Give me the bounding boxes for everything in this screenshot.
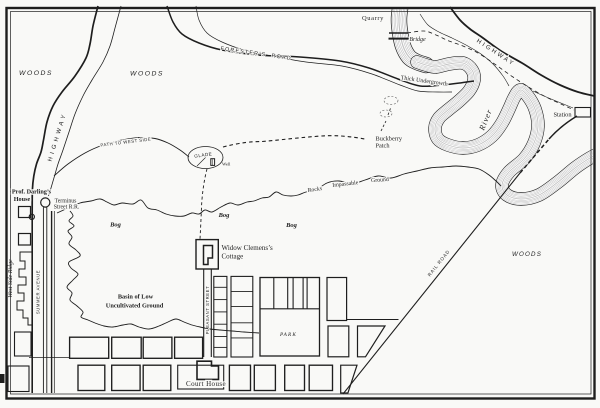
svg-text:Widow Clemens’s: Widow Clemens’s <box>222 244 274 252</box>
svg-text:PARK: PARK <box>279 332 297 338</box>
svg-text:West Side Ridge: West Side Ridge <box>8 259 14 298</box>
svg-text:WOODS: WOODS <box>130 71 164 78</box>
svg-text:Prof. Darling’s: Prof. Darling’s <box>12 189 52 196</box>
svg-text:Bog: Bog <box>109 222 122 229</box>
svg-text:Quarry: Quarry <box>362 15 384 22</box>
svg-text:Uncultivated Ground: Uncultivated Ground <box>106 303 164 310</box>
svg-text:House: House <box>14 196 31 203</box>
svg-text:PLEASANT STREET: PLEASANT STREET <box>205 286 210 334</box>
svg-text:Bog: Bog <box>285 222 298 229</box>
svg-text:Ground: Ground <box>371 177 389 184</box>
svg-text:Well: Well <box>222 162 231 167</box>
svg-text:Patch: Patch <box>376 143 391 150</box>
svg-text:WOODS: WOODS <box>512 251 542 258</box>
svg-text:WOODS: WOODS <box>19 70 53 77</box>
svg-text:SUMMER AVENUE: SUMMER AVENUE <box>35 270 40 314</box>
svg-text:Street R.R.: Street R.R. <box>54 204 80 210</box>
svg-text:Bridge: Bridge <box>409 37 426 43</box>
svg-text:Station: Station <box>553 112 572 119</box>
svg-text:Bog: Bog <box>218 212 231 219</box>
svg-text:Basin of Low: Basin of Low <box>118 294 154 301</box>
svg-text:Cottage: Cottage <box>222 253 244 261</box>
svg-text:Court House: Court House <box>186 380 226 388</box>
svg-text:Buckberry: Buckberry <box>376 136 403 143</box>
